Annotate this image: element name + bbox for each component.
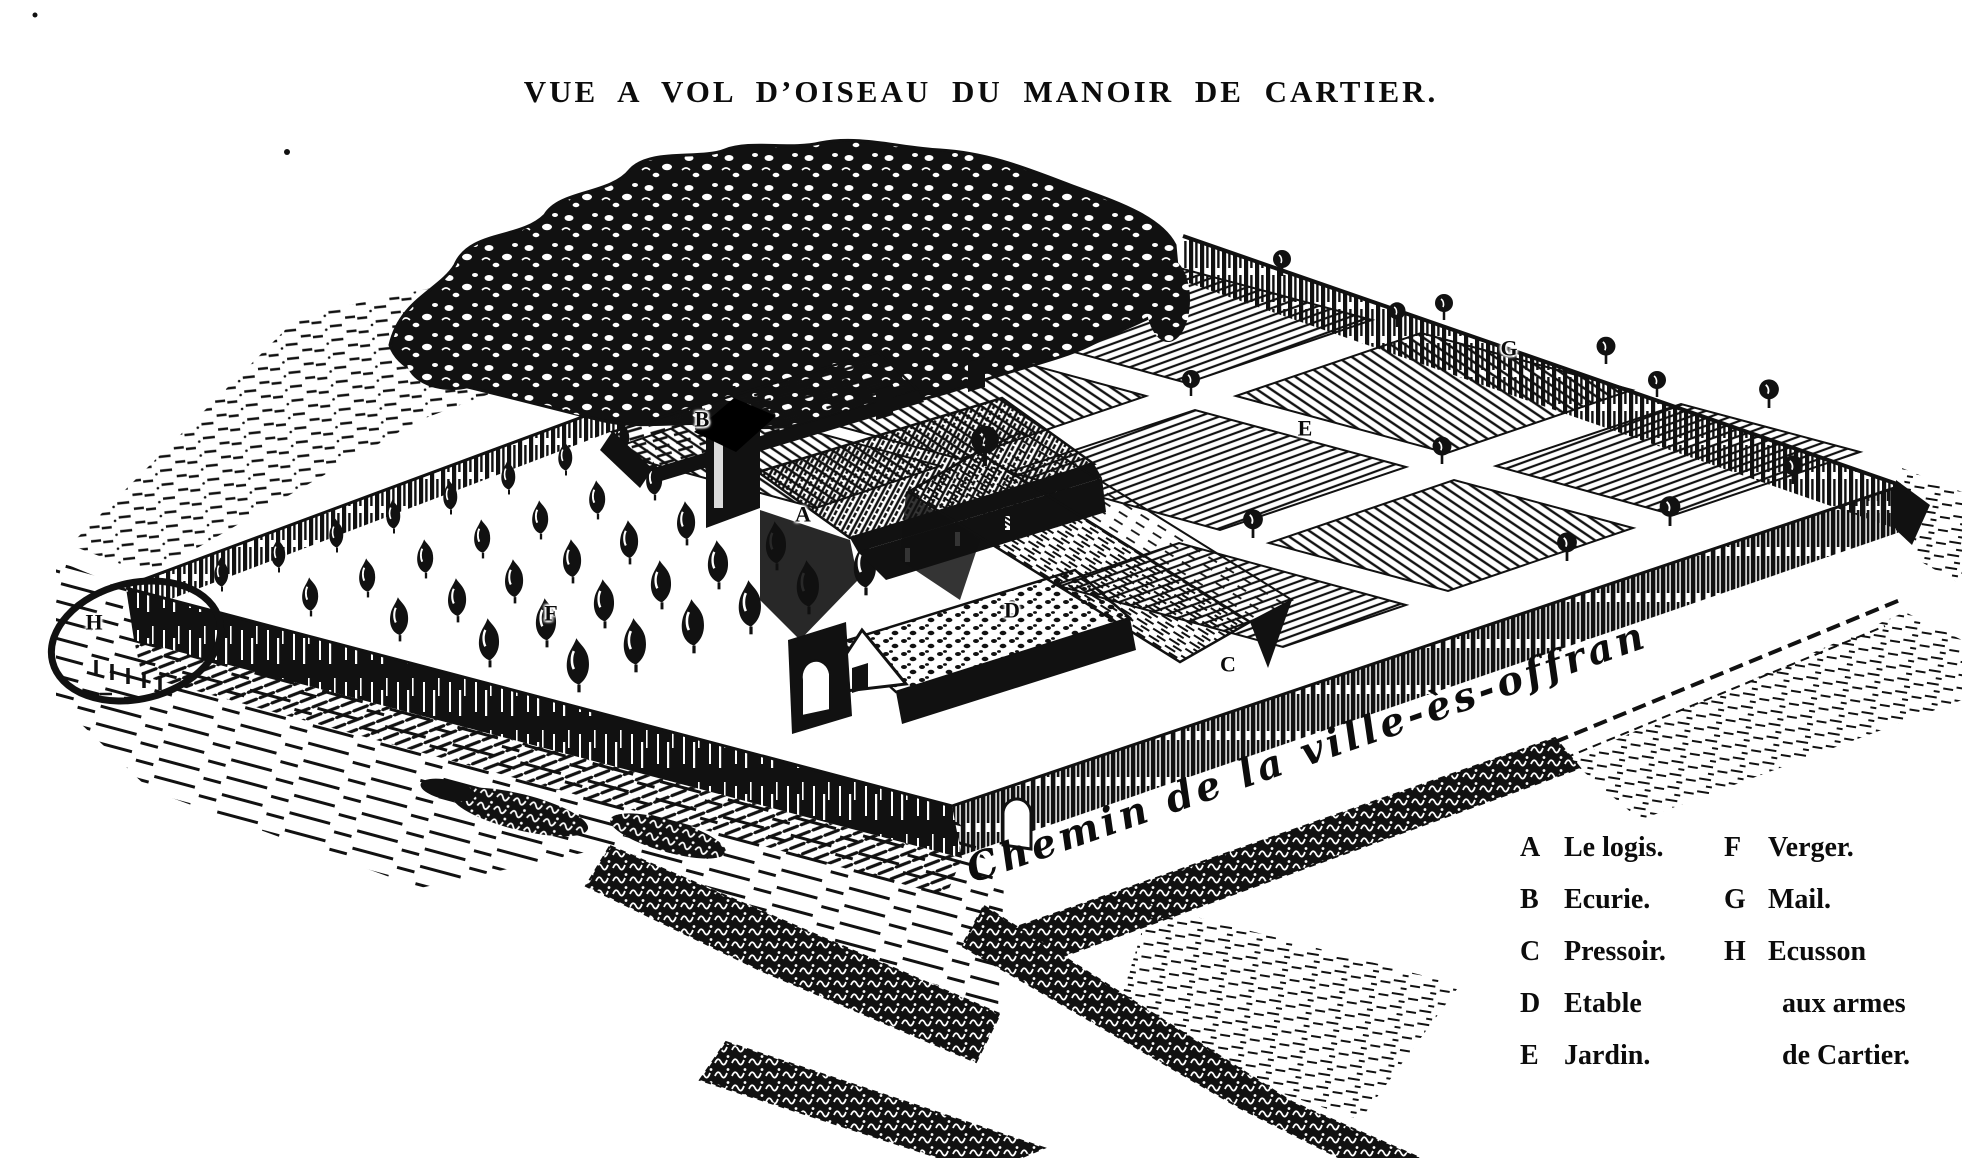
legend-label: Ecusson — [1768, 936, 1866, 968]
plan-letter-E: E — [1298, 416, 1313, 442]
legend-column-2: FVerger.GMail.HEcussonaux armesde Cartie… — [1724, 822, 1910, 1082]
topiary-tree — [1759, 379, 1779, 408]
legend-column-1: ALe logis.BEcurie.CPressoir.DEtableEJard… — [1520, 822, 1724, 1082]
legend-item-A: ALe logis. — [1520, 822, 1724, 874]
legend-key: E — [1520, 1040, 1564, 1072]
legend-item-c2-cont4: de Cartier. — [1724, 1030, 1910, 1082]
page-title: VUE A VOL D’OISEAU DU MANOIR DE CARTIER. — [0, 74, 1962, 110]
ink-speck — [33, 13, 38, 18]
chimney — [968, 357, 985, 392]
legend-label: de Cartier. — [1768, 1040, 1910, 1072]
legend-key: B — [1520, 884, 1564, 916]
legend-label: Ecurie. — [1564, 884, 1650, 916]
ink-speck — [284, 149, 290, 155]
legend-item-H: HEcusson — [1724, 926, 1910, 978]
legend-label: Verger. — [1768, 832, 1854, 864]
legend-label: aux armes — [1768, 988, 1906, 1020]
legend-label: Le logis. — [1564, 832, 1664, 864]
legend-item-D: DEtable — [1520, 978, 1724, 1030]
engraving-page: VUE A VOL D’OISEAU DU MANOIR DE CARTIER.… — [0, 0, 1962, 1158]
legend-item-F: FVerger. — [1724, 822, 1910, 874]
legend-key: A — [1520, 832, 1564, 864]
legend-item-B: BEcurie. — [1520, 874, 1724, 926]
legend-key: F — [1724, 832, 1768, 864]
plan-letter-B: B — [695, 407, 710, 433]
plan-letter-A: A — [795, 502, 811, 528]
legend-key: G — [1724, 884, 1768, 916]
legend: ALe logis.BEcurie.CPressoir.DEtableEJard… — [1520, 822, 1910, 1082]
legend-item-c2-cont3: aux armes — [1724, 978, 1910, 1030]
legend-item-E: EJardin. — [1520, 1030, 1724, 1082]
plan-letter-F: F — [544, 601, 557, 627]
topiary-tree — [1597, 337, 1616, 364]
legend-key: D — [1520, 988, 1564, 1020]
plan-letter-D: D — [1004, 598, 1020, 624]
plan-letter-G: G — [1500, 336, 1517, 362]
legend-label: Etable — [1564, 988, 1642, 1020]
topiary-tree — [1435, 294, 1453, 320]
plan-letter-C: C — [1220, 652, 1236, 678]
legend-key: C — [1520, 936, 1564, 968]
legend-key: H — [1724, 936, 1768, 968]
plan-letter-H: H — [85, 610, 102, 636]
topiary-tree — [1648, 371, 1666, 397]
legend-label: Mail. — [1768, 884, 1831, 916]
gate-arch — [788, 622, 852, 734]
legend-item-C: CPressoir. — [1520, 926, 1724, 978]
legend-item-G: GMail. — [1724, 874, 1910, 926]
legend-label: Pressoir. — [1564, 936, 1666, 968]
chimney — [876, 385, 893, 420]
legend-label: Jardin. — [1564, 1040, 1650, 1072]
